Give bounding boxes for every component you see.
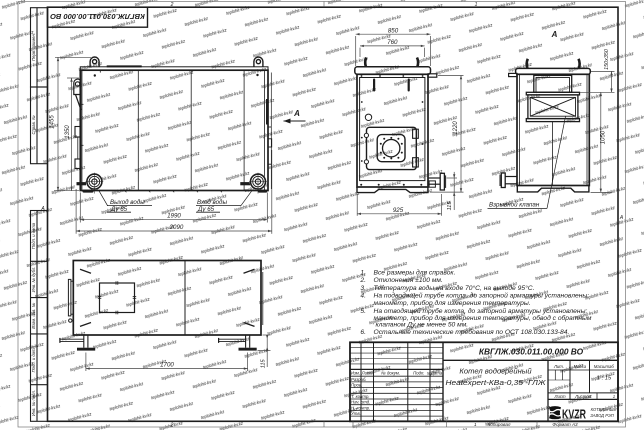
svg-text:КВГЛЖ.030.011.00.000 ВО: КВГЛЖ.030.011.00.000 ВО <box>50 12 145 21</box>
svg-text:Инв. № подл.: Инв. № подл. <box>31 390 36 416</box>
svg-text:Разраб.: Разраб. <box>351 377 367 382</box>
svg-text:Дата: Дата <box>430 370 443 375</box>
svg-text:Котел водогрейный: Котел водогрейный <box>459 367 532 376</box>
svg-text:Копировал: Копировал <box>488 422 511 427</box>
svg-text:Лит.: Лит. <box>553 364 564 369</box>
svg-text:Пров.: Пров. <box>351 383 362 388</box>
svg-text:Формат А3: Формат А3 <box>552 422 578 427</box>
svg-text:150х350: 150х350 <box>604 49 610 70</box>
svg-text:Нач. отд.: Нач. отд. <box>351 400 370 405</box>
svg-text:манометр, прибор для измерения: манометр, прибор для измерения температу… <box>374 299 531 307</box>
svg-text:4.: 4. <box>360 293 366 300</box>
svg-text:ЗАВОД РЭП: ЗАВОД РЭП <box>590 413 614 418</box>
svg-text:Инв. № дубл.: Инв. № дубл. <box>31 267 36 293</box>
svg-text:2: 2 <box>170 2 174 8</box>
svg-text:KVZR: KVZR <box>562 407 586 422</box>
svg-text:Взрывной клапан: Взрывной клапан <box>489 202 540 209</box>
svg-text:Перв. примен.: Перв. примен. <box>31 33 36 61</box>
svg-text:Масштаб: Масштаб <box>594 364 615 369</box>
svg-text:2: 2 <box>170 422 174 428</box>
svg-text:760: 760 <box>387 39 398 46</box>
svg-text:925: 925 <box>393 207 404 214</box>
svg-text:Подп. и дата: Подп. и дата <box>31 222 36 249</box>
svg-text:Листов: Листов <box>574 394 591 399</box>
svg-text:А: А <box>551 30 558 39</box>
svg-text:1350: 1350 <box>65 125 71 139</box>
svg-text:3.: 3. <box>360 285 366 292</box>
svg-text:1050: 1050 <box>601 130 607 144</box>
svg-text:1: 1 <box>474 422 477 427</box>
svg-text:Масса: Масса <box>573 364 586 369</box>
svg-text:КВГЛЖ.030.011.00.000 ВО: КВГЛЖ.030.011.00.000 ВО <box>479 347 584 357</box>
svg-text:А: А <box>293 109 300 118</box>
svg-text:Лист: Лист <box>554 394 566 399</box>
svg-text:115: 115 <box>447 201 453 211</box>
svg-text:Н. контр.: Н. контр. <box>351 405 370 410</box>
svg-text:Heatexpert-КВа-0,35 -ГЛЖ: Heatexpert-КВа-0,35 -ГЛЖ <box>446 378 547 387</box>
svg-text:1220: 1220 <box>453 121 459 135</box>
svg-text:2.: 2. <box>359 277 366 284</box>
svg-text:1: 1 <box>475 2 478 8</box>
svg-text:Остальные технические требован: Остальные технические требования по ОСТ … <box>374 328 570 336</box>
svg-text:1 : 15: 1 : 15 <box>597 376 612 382</box>
svg-text:850: 850 <box>388 27 399 34</box>
svg-text:КОТЕЛЬНЫЙ: КОТЕЛЬНЫЙ <box>591 407 617 412</box>
svg-text:Изм.: Изм. <box>351 370 360 375</box>
svg-text:1455: 1455 <box>50 115 56 129</box>
svg-text:Подп. и дата: Подп. и дата <box>31 346 36 373</box>
svg-text:Вход воды: Вход воды <box>197 199 227 206</box>
svg-text:6.: 6. <box>360 329 366 336</box>
svg-text:На подводящей трубе котла, до: На подводящей трубе котла, до запорной а… <box>374 292 590 300</box>
svg-text:1990: 1990 <box>167 213 181 220</box>
svg-text:клапаном Ду не менее 50 мм.: клапаном Ду не менее 50 мм. <box>376 322 469 329</box>
svg-text:1700: 1700 <box>160 362 174 369</box>
svg-text:Подп.: Подп. <box>413 370 424 375</box>
svg-text:А: А <box>40 206 45 212</box>
svg-text:№ докум.: № докум. <box>381 370 400 375</box>
svg-text:А: А <box>619 215 624 221</box>
svg-text:115: 115 <box>261 358 267 368</box>
svg-text:Взам. инв. №: Взам. инв. № <box>31 302 36 328</box>
svg-text:Отклонения ±100 мм.: Отклонения ±100 мм. <box>374 277 444 284</box>
svg-text:Утв.: Утв. <box>351 411 361 416</box>
svg-text:Справ. №: Справ. № <box>31 115 36 134</box>
svg-text:На отводящей трубе котла, до з: На отводящей трубе котла, до запорной ар… <box>374 307 588 315</box>
svg-text:2090: 2090 <box>169 224 184 231</box>
svg-text:Выход воды: Выход воды <box>110 199 145 206</box>
svg-text:Лист: Лист <box>361 370 373 375</box>
svg-text:Т. контр.: Т. контр. <box>351 394 370 399</box>
svg-text:Температура воды на входе 70°С: Температура воды на входе 70°С, на выход… <box>374 284 535 292</box>
svg-text:1.: 1. <box>360 269 366 276</box>
svg-text:Все размеры для справок.: Все размеры для справок. <box>374 268 456 276</box>
svg-text:5.: 5. <box>360 308 366 315</box>
